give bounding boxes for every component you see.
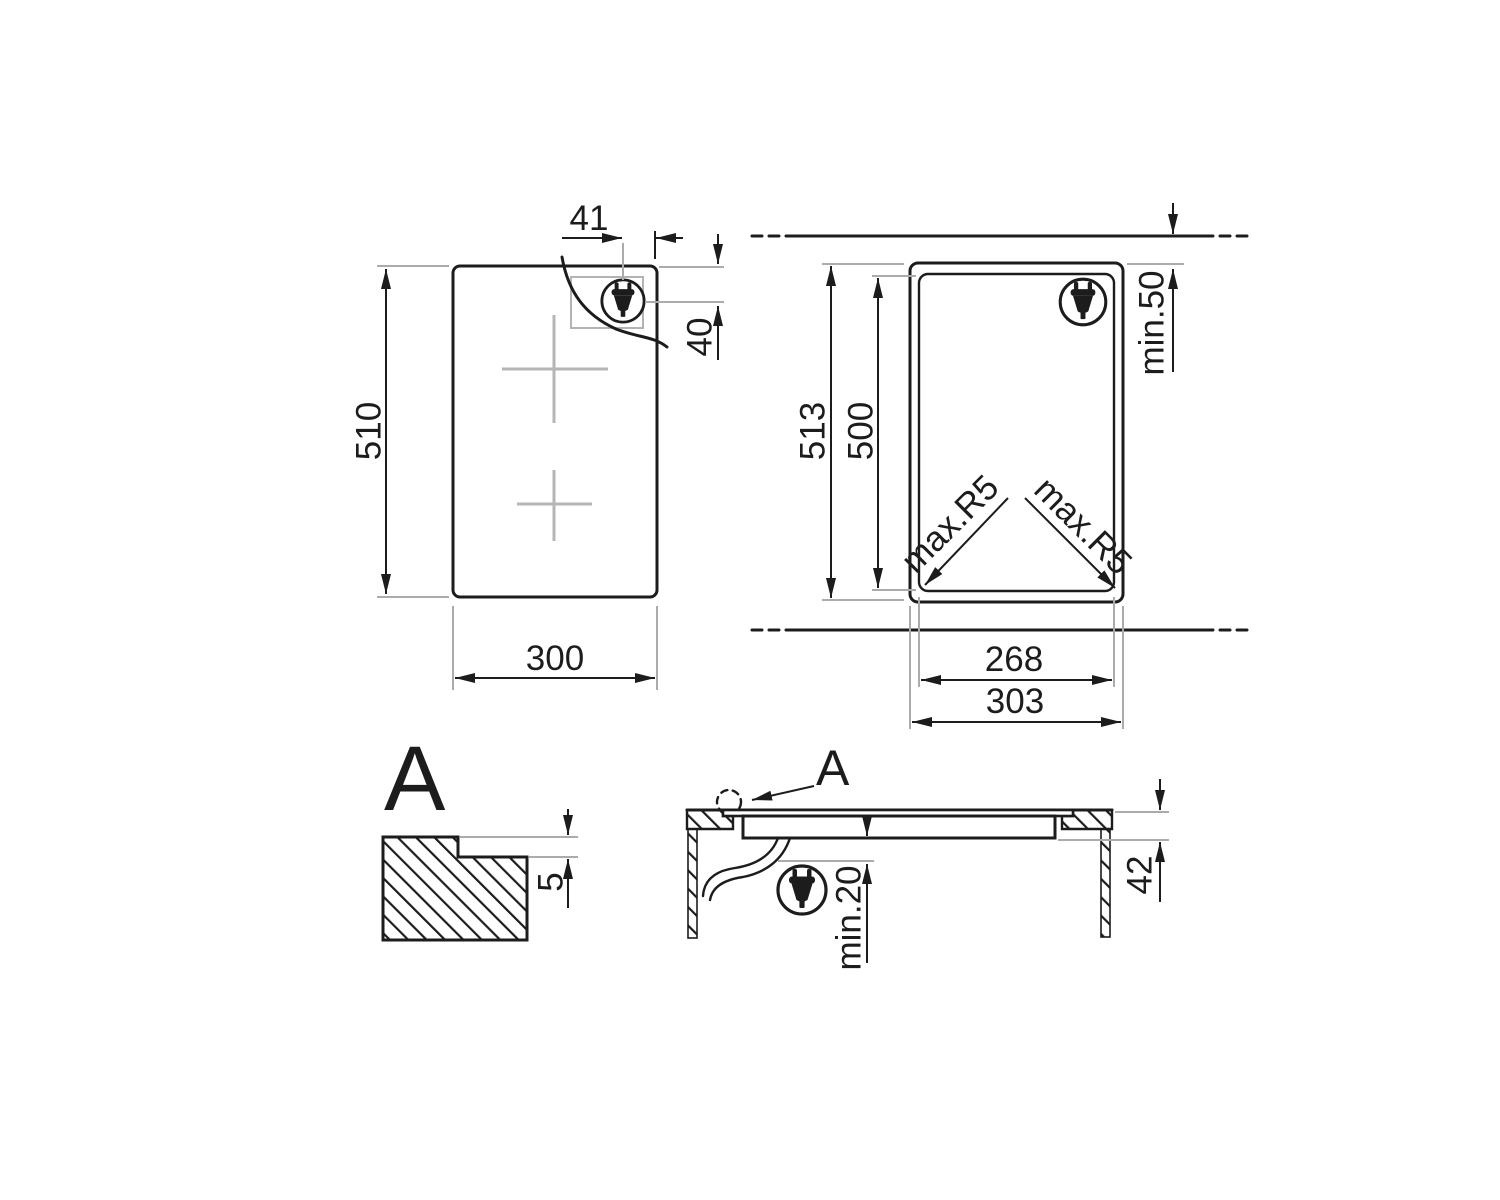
dimension-label: 41 bbox=[570, 199, 609, 238]
dimension-label: 40 bbox=[681, 318, 720, 357]
dimension-label: 42 bbox=[1121, 856, 1160, 895]
detail-leader-arrow bbox=[752, 786, 814, 800]
dimension-rear-clearance-min50: min.50 bbox=[1127, 203, 1184, 376]
dimension-height-510: 510 bbox=[350, 266, 450, 597]
cutout-plan-view: 513 500 min.50 max.R5 max.R5 bbox=[752, 203, 1249, 729]
hob-installation-drawing: 510 300 41 40 bbox=[0, 0, 1500, 1200]
cabinet-wall-left bbox=[688, 829, 697, 938]
technical-drawing-page: 510 300 41 40 bbox=[0, 0, 1500, 1200]
dimension-width-300: 300 bbox=[453, 606, 657, 690]
power-plug-icon bbox=[778, 866, 826, 914]
dimension-label: 5 bbox=[532, 872, 571, 891]
dimension-label: min.20 bbox=[830, 865, 869, 970]
dimension-cutout-width-268: 268 bbox=[919, 597, 1114, 687]
dimension-installation-depth-42: 42 bbox=[1058, 779, 1169, 902]
power-plug-icon bbox=[602, 280, 644, 322]
worktop-detail-a-view: A 5 bbox=[383, 728, 578, 940]
detail-reference-label: A bbox=[816, 740, 850, 796]
dimension-label: 303 bbox=[986, 682, 1044, 721]
worktop-rebate-section bbox=[383, 837, 527, 940]
detail-label: A bbox=[384, 728, 446, 830]
dimension-label: 500 bbox=[842, 402, 881, 460]
hob-top-view: 510 300 41 40 bbox=[350, 199, 725, 690]
hob-body bbox=[743, 816, 1055, 838]
dimension-label: 513 bbox=[794, 402, 833, 460]
power-plug-icon bbox=[1060, 279, 1106, 325]
installation-section-view: A min.20 42 bbox=[687, 740, 1169, 971]
dimension-label: 300 bbox=[526, 639, 584, 678]
dimension-label: 268 bbox=[985, 640, 1043, 679]
dimension-label: 510 bbox=[350, 402, 389, 460]
cabinet-wall-right bbox=[1101, 829, 1110, 937]
dimension-rebate-depth-5: 5 bbox=[532, 809, 571, 908]
dimension-label: min.50 bbox=[1133, 270, 1172, 375]
